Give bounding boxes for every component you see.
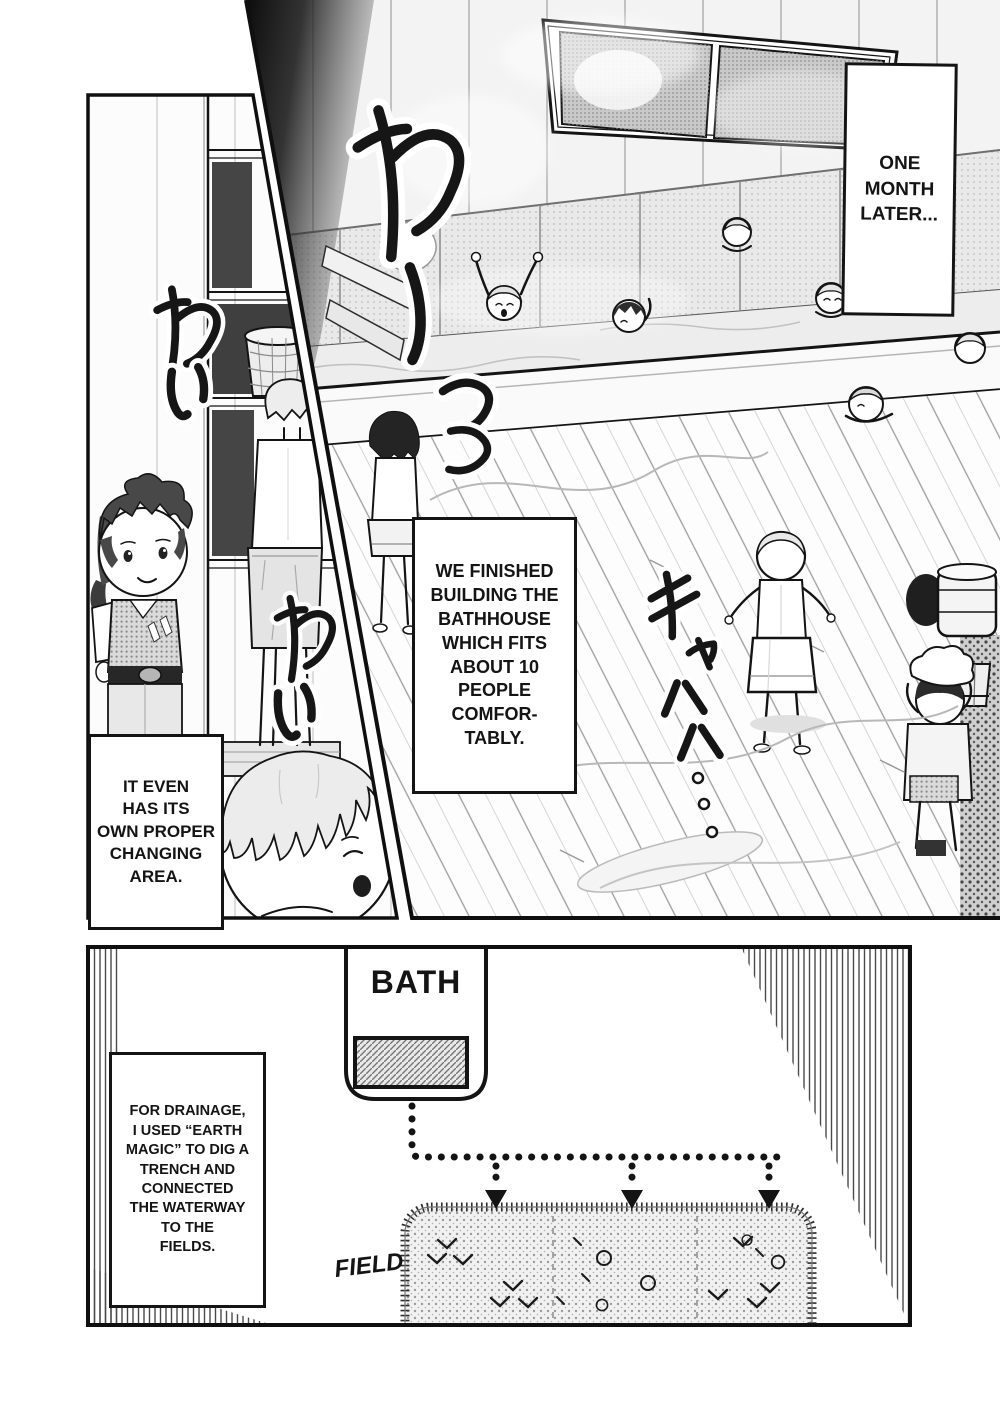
manga-page: ONE MONTH LATER... WE FINISHED BUILDING … <box>0 0 1000 1421</box>
caption-one-month-later: ONE MONTH LATER... <box>841 62 958 317</box>
field-shape <box>405 1207 812 1357</box>
caption-drainage: FOR DRAINAGE, I USED “EARTH MAGIC” TO DI… <box>109 1052 266 1308</box>
foreground-boy-head <box>220 751 396 934</box>
bath-label: BATH <box>350 958 482 1006</box>
caption-bathhouse-narration: WE FINISHED BUILDING THE BATHHOUSE WHICH… <box>412 517 577 794</box>
caption-changing-area: IT EVEN HAS ITS OWN PROPER CHANGING AREA… <box>88 734 224 930</box>
bath-tub-rect <box>355 1038 467 1087</box>
kid-at-tub-edge <box>955 333 985 363</box>
